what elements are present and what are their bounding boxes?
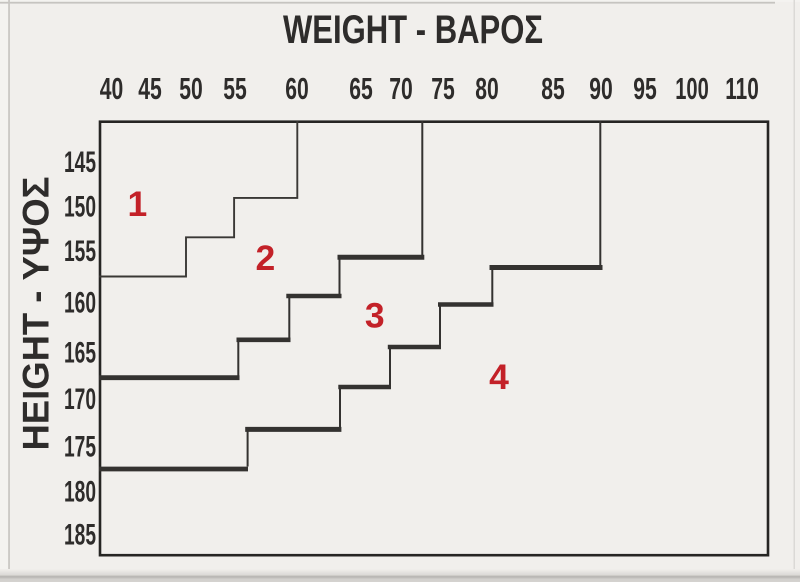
svg-text:55: 55 <box>223 72 247 106</box>
svg-text:65: 65 <box>349 72 373 106</box>
svg-text:45: 45 <box>138 72 162 106</box>
svg-text:100: 100 <box>675 72 709 106</box>
svg-text:WEIGHT - ΒΑΡΟΣ: WEIGHT - ΒΑΡΟΣ <box>283 8 543 52</box>
svg-text:3: 3 <box>365 295 385 335</box>
svg-text:170: 170 <box>64 383 96 416</box>
svg-text:95: 95 <box>633 72 657 106</box>
svg-text:80: 80 <box>475 72 499 106</box>
svg-text:70: 70 <box>389 72 413 106</box>
svg-text:175: 175 <box>64 430 96 463</box>
svg-text:180: 180 <box>64 475 96 508</box>
svg-text:4: 4 <box>489 357 509 397</box>
svg-text:75: 75 <box>431 72 455 106</box>
svg-text:85: 85 <box>541 72 565 106</box>
svg-text:110: 110 <box>725 72 759 106</box>
svg-text:50: 50 <box>179 72 203 106</box>
svg-text:90: 90 <box>589 72 613 106</box>
svg-text:160: 160 <box>64 287 96 320</box>
svg-text:1: 1 <box>128 184 148 224</box>
svg-text:185: 185 <box>64 519 96 552</box>
svg-text:145: 145 <box>64 146 96 179</box>
svg-text:2: 2 <box>256 238 276 278</box>
svg-text:HEIGHT - ΥΨΟΣ: HEIGHT - ΥΨΟΣ <box>16 177 57 451</box>
svg-text:165: 165 <box>64 336 96 369</box>
svg-text:60: 60 <box>285 72 309 106</box>
svg-text:150: 150 <box>64 190 96 223</box>
svg-text:155: 155 <box>64 235 96 268</box>
svg-text:40: 40 <box>100 72 124 106</box>
